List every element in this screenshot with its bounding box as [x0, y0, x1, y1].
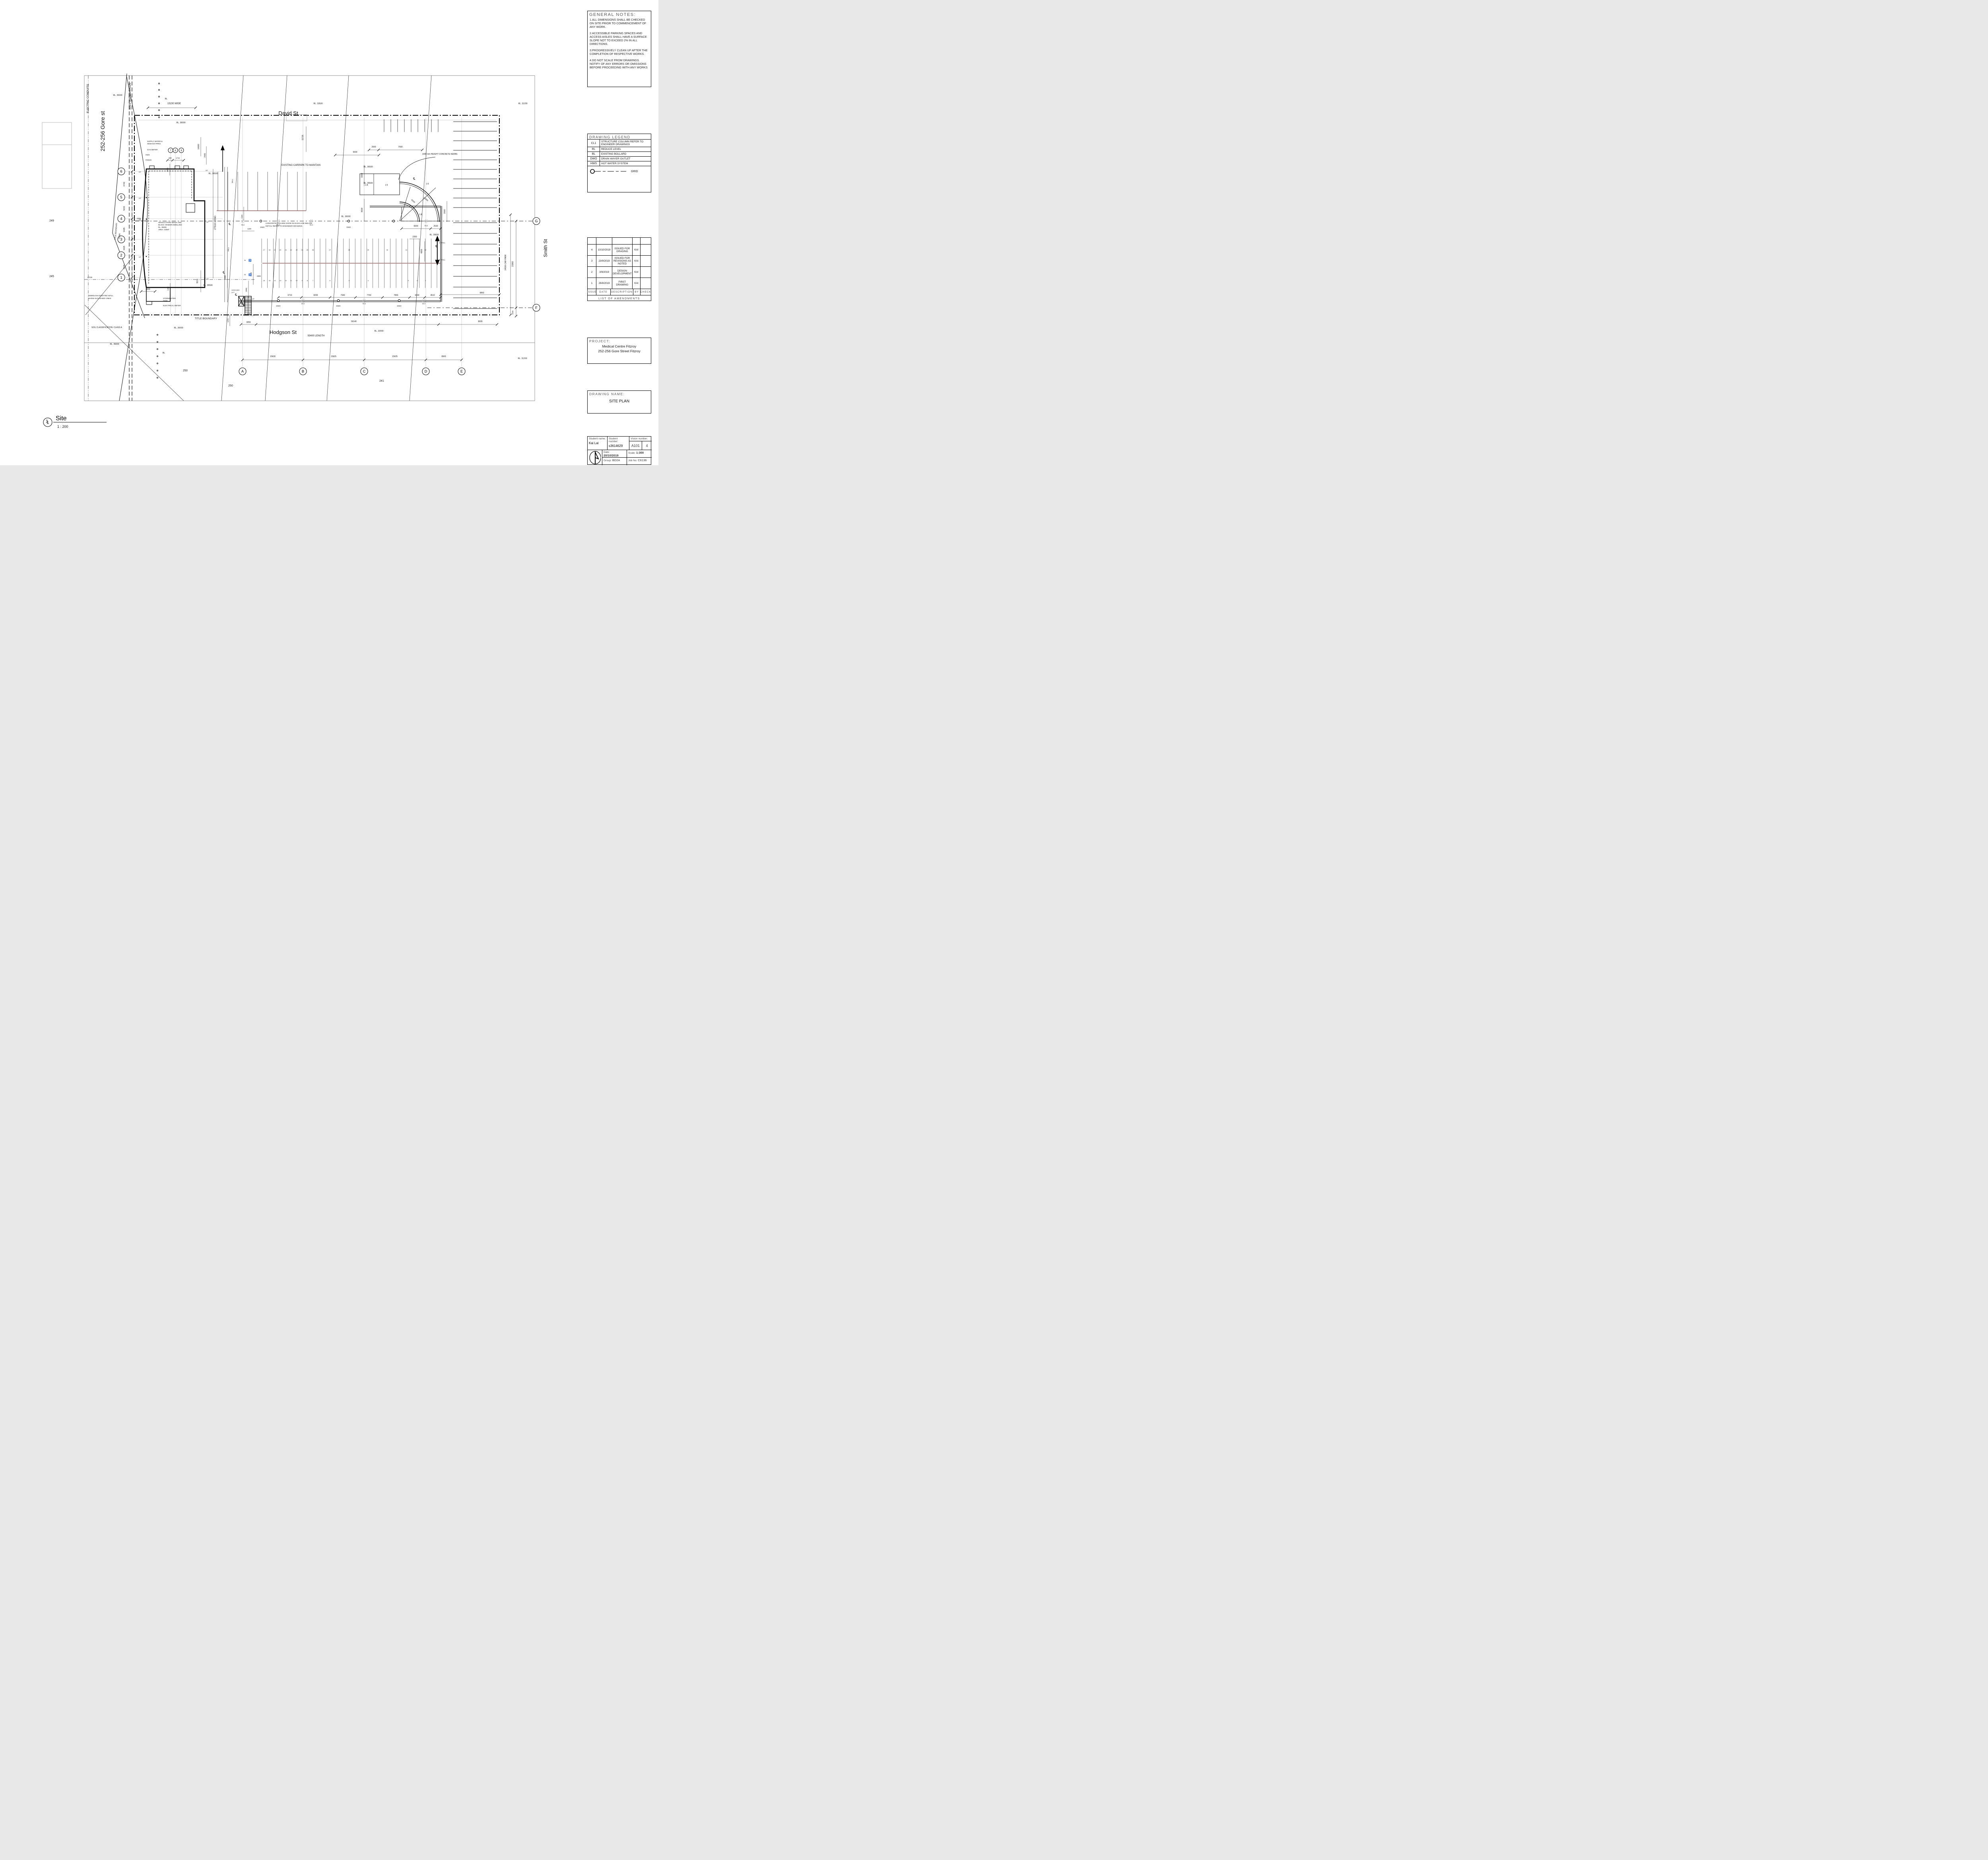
plan-label: DP [206, 221, 209, 223]
plan-label: CONCRETE COLUMN SHOW IN DASH LINE BELOW [266, 222, 312, 225]
bollard [159, 110, 160, 111]
carpark-walls [239, 206, 442, 302]
wheelchair-icon: ♿ [248, 273, 252, 276]
parking-number: 16 [263, 280, 265, 282]
bollard [159, 103, 160, 104]
plan-label: 7760 [367, 294, 371, 297]
plan-label: 58140 [351, 320, 357, 323]
plan-label: ELECTRIC CONDUITS [87, 84, 89, 113]
plan-label: TITLE BOUNDARY [195, 317, 217, 320]
grid-bubble-label: F [535, 306, 538, 310]
general-note: 2.ACCESSIBLE PARKING SPACES AND ACCESS A… [590, 31, 649, 46]
amendment-row: 410/10/2019ISSUED FOR GRADINGKAI [588, 245, 651, 256]
stair [245, 296, 251, 315]
parking-number: 29 [367, 249, 369, 251]
plan-label: 9570 [196, 279, 199, 283]
parking-number: 27 [329, 249, 331, 251]
amendment-row [588, 238, 651, 245]
amendment-cell: ISSUED FOR GRADING [612, 245, 633, 255]
plan-label: 1° FALL [439, 259, 446, 261]
amendment-row: 323/9/2019ISSUED FOR REVISIONS AS NOTEDK… [588, 256, 651, 267]
plan-label: Smith St [543, 239, 548, 257]
bollard [157, 370, 158, 371]
amendments-table: 410/10/2019ISSUED FOR GRADINGKAI323/9/20… [588, 238, 651, 301]
legend-code: BL [588, 152, 600, 156]
legend-grid-label: GRID [631, 170, 638, 173]
plan-label: CL1 [301, 303, 305, 305]
plan-label: SINGLE STORY BRICK AND [158, 221, 182, 223]
grid-bubble-label: 2 [120, 253, 122, 257]
plan-label: EXISTING CARPARK TO MAINTAIN [282, 164, 320, 167]
plan-label: RL. 35500 [363, 182, 373, 184]
plan-label: SEWAGE PIPES [147, 143, 161, 145]
plan-label: MAIN WATER DRAIN [129, 83, 132, 110]
parking-number: 13 [280, 280, 282, 282]
plan-label: 250 [228, 384, 233, 387]
plan-label: AREA: 420M² [158, 229, 169, 231]
plan-label: 5405 [123, 227, 126, 232]
grid-bubble-label: D [425, 369, 427, 373]
legend-desc: DRAIN WAYER OUTLET [600, 157, 651, 161]
drawing-name: SITE PLAN [588, 399, 651, 404]
driveway-edges [225, 167, 227, 302]
plan-label: RL. 36500 [363, 166, 373, 168]
plan-label: 241 [379, 380, 384, 382]
legend-code: HWS [588, 161, 600, 166]
amendment-cell [641, 267, 651, 278]
plan-label: 1190 [247, 228, 251, 230]
site-plan-canvas: 654321789ABCDEGF1 David StHodgson StSmit… [0, 0, 658, 465]
plan-label: 2405 [137, 217, 141, 219]
plan-label: 2700 [167, 167, 169, 172]
amendment-row: 23/9/2019DESIGN DEVELOPMENTKAI [588, 267, 651, 278]
plan-label: CL1 [277, 224, 280, 226]
plan-label: 12000 [423, 196, 429, 202]
meter-boxes [149, 166, 195, 212]
amendment-cell: 4 [588, 245, 596, 255]
plan-label: 250 [183, 369, 188, 372]
title-block: Student name: Kai Lai Student number: s3… [587, 436, 651, 465]
bollard-dots [157, 83, 160, 379]
plan-label: Hodgson St [270, 329, 297, 335]
amendment-cell: KAI [633, 245, 641, 255]
view-number: 1 [46, 419, 48, 424]
project-name: Medical Centre Fitzroy 252-256 Gore Stre… [588, 344, 651, 353]
amendment-cell: DATE [596, 289, 611, 295]
amendment-cell [641, 256, 651, 266]
general-notes-title: GENERAL NOTES: [588, 11, 651, 17]
smith-st-parking [453, 122, 497, 309]
student-number-cell: Student number: s3614629 [608, 437, 629, 450]
title-boundary [134, 115, 499, 315]
parking-number: 7 [313, 280, 314, 282]
drawing-name-label: DRAWING NAME: [588, 391, 651, 397]
plan-label: RL. 35500 [203, 284, 212, 287]
plan-label: 880 [169, 157, 172, 159]
accessible-bay-number: 33 [244, 274, 246, 276]
vision-number-label: Vision number: [631, 437, 648, 440]
legend-row: BLEXISTING BOLLARD [588, 151, 651, 156]
plan-label: LPOD [87, 276, 93, 278]
plan-label: 11725 [302, 135, 304, 140]
parking-number: 17 [263, 249, 265, 251]
parking-number: 31 [406, 249, 408, 251]
project-panel: PROJECT: Medical Centre Fitzroy 252-256 … [587, 338, 651, 364]
grid-bubble-label: 6 [120, 169, 122, 173]
plan-label: DWO [397, 305, 402, 307]
plan-label: 3055 [246, 321, 250, 324]
amendment-cell [596, 238, 612, 244]
plan-label: DWO [336, 305, 341, 307]
legend-grid-row: GRID [588, 166, 651, 177]
plan-label: CL1 [425, 225, 428, 227]
scale-cell: Scale: 1:300 [627, 450, 652, 458]
amendment-cell: KAI [633, 278, 641, 289]
plan-label: 1715 [176, 157, 180, 159]
legend-row: RLREDUCE LEVEL [588, 147, 651, 151]
plan-label: 7340 [340, 294, 345, 297]
plan-label: DP [139, 171, 141, 173]
bollard [159, 117, 160, 118]
general-note: 3.PROGRESSIVELY CLEAN UP AFTER THE COMPL… [590, 49, 649, 56]
grid-bubble-label: B [302, 369, 304, 373]
plan-label: 5375 [123, 264, 126, 269]
north-arrow-cell [588, 450, 602, 465]
plan-label: 8000 [361, 208, 363, 212]
amendment-cell: 10/10/2019 [596, 245, 612, 255]
parking-number: 26 [312, 249, 314, 251]
amendment-cell [641, 245, 651, 255]
parking-number: 28 [348, 249, 350, 251]
grid-bubble-label: 1 [120, 276, 122, 280]
bollard [157, 349, 158, 350]
amendment-cell [612, 238, 633, 244]
bollard [157, 356, 158, 357]
existing-carpark-bays [218, 172, 306, 211]
legend-code: CL1 [588, 140, 600, 147]
general-note: 1.ALL DIMENSIONS SHALL BE CHECKED ON SIT… [590, 18, 649, 29]
dwelling-outline [143, 169, 205, 287]
plan-label: DP [206, 278, 209, 280]
parking-number: 3 [408, 280, 409, 282]
legend-desc: STRUCTURE COLUMN REFER TO ENGINEER DRAWI… [600, 140, 651, 147]
plan-label: RL. 31200 [518, 357, 527, 360]
view-name: Site [56, 415, 67, 422]
plan-label: 6000 [414, 225, 418, 227]
legend-row: HWSHOT WATER SYSTEM [588, 161, 651, 166]
general-notes-panel: GENERAL NOTES: 1.ALL DIMENSIONS SHALL BE… [587, 11, 651, 87]
plan-label: 9930 [353, 151, 357, 153]
date-label: Date: [604, 451, 610, 454]
dimension-ticks [131, 107, 517, 361]
amendment-cell: 2 [588, 267, 596, 278]
legend-desc: HOT WATER SYSTEM [600, 161, 651, 166]
sheet-number-cell: A101 [629, 441, 642, 450]
legend-code: RL [588, 147, 600, 151]
amendment-cell [641, 278, 651, 289]
plan-label: 21960 [512, 261, 514, 267]
plan-label: DETAIL REFER TO ENGINEER DRAWING. [266, 225, 303, 227]
plan-label: RL. 35000 [110, 343, 119, 346]
plan-label: 51080 [118, 233, 121, 239]
scale-value: 1:300 [636, 451, 644, 454]
plan-label: CL1 [363, 303, 366, 305]
plan-label: 2235 [512, 310, 514, 315]
plan-annotations: David StHodgson StSmith St252-256 Gore s… [49, 83, 548, 387]
plan-label: 8490 [224, 275, 227, 280]
plan-label: 15625 [331, 355, 336, 358]
parking-number: 10 [296, 280, 298, 282]
plan-label: ℄ [413, 177, 415, 181]
amendment-cell [588, 238, 596, 244]
plan-label: 5015 [123, 206, 126, 210]
plan-label: 2350 [412, 236, 417, 238]
plan-label: SUPPLY WATER & [147, 140, 163, 142]
plan-label: ℄ [235, 293, 237, 297]
date-cell: Date: 20/10/2019 [602, 450, 627, 458]
parking-number: 21 [285, 249, 287, 251]
grid-bubble-label: A [241, 369, 244, 373]
plan-label: 8900 [441, 355, 446, 358]
sheet-number: A101 [631, 444, 640, 448]
vision-number-label-cell: Vision number: [629, 437, 652, 441]
plan-label: 15230 WIDE [167, 103, 181, 105]
grid-symbol-icon [590, 169, 629, 174]
plan-label: 245 [49, 275, 54, 278]
project-label: PROJECT: [588, 338, 651, 344]
plan-label: 2000 [444, 209, 446, 214]
plan-label: 2530 [433, 225, 438, 227]
electrical-meter [146, 301, 152, 305]
plan-label: FALL [227, 247, 229, 251]
plan-label: ℄ [222, 271, 225, 274]
plan-label: 252-256 Gore st [99, 111, 106, 151]
plan-label: 7000 [398, 146, 402, 148]
bollard [159, 96, 160, 97]
plan-label: 1270 [227, 318, 229, 322]
parking-number: 4 [368, 280, 369, 282]
student-name-cell: Student name: Kai Lai [588, 437, 608, 450]
parking-number: 15 [269, 280, 271, 282]
plan-label: DWO [347, 226, 351, 228]
project-line1: Medical Centre Fitzroy [588, 344, 651, 349]
bollard [159, 89, 160, 91]
plan-label: 2890 [245, 287, 247, 292]
amendment-row: ISSUEDATEDESCRIPTIONBYCHECK [588, 289, 651, 295]
plan-label: CL1 [310, 224, 313, 226]
general-notes-list: 1.ALL DIMENSIONS SHALL BE CHECKED ON SIT… [588, 17, 651, 73]
plan-label: 27510 LONG [214, 216, 217, 230]
plan-label: RL. 33500 [313, 103, 322, 105]
plan-label: HWS [146, 154, 150, 156]
job-value: C6136 [638, 458, 646, 462]
plan-label: 249 [49, 219, 54, 222]
plan-label: DP [139, 197, 141, 199]
plan-label: SOIL CLASSIFICATION :CLASS A [91, 326, 122, 329]
plan-label: David St [278, 110, 298, 116]
job-label: Job No. [628, 459, 637, 462]
drain-outlet-marker [392, 220, 394, 222]
parking-number: 11 [290, 280, 292, 282]
plan-label: ℄ [228, 222, 231, 226]
plan-label: 1900X1800 [231, 289, 240, 291]
plan-label: TANK [163, 300, 168, 302]
plan-label: CL1 [422, 303, 426, 305]
student-name-label: Student name: [589, 437, 606, 440]
plan-label: 1400 [167, 286, 169, 291]
bollard [157, 342, 158, 343]
plan-label: RL. 39600 [429, 234, 439, 236]
parking-number: 9 [302, 280, 303, 282]
plan-label: 1:8 [419, 214, 422, 216]
plan-label: DP [139, 256, 141, 258]
plan-label: 2000 [371, 146, 376, 148]
main-water-drain-line [129, 76, 132, 401]
plan-label: 1:5 [385, 184, 388, 186]
plan-label: 24590 CAR PARK [505, 254, 507, 270]
project-line2: 252-256 Gore Street Fitzroy [588, 349, 651, 354]
group-value: BD2A [612, 458, 620, 462]
plan-label: 15625 [392, 355, 398, 358]
plan-label: 6000 [361, 173, 363, 177]
amendment-cell: 1 [588, 278, 596, 289]
amendment-cell: CHECK [641, 289, 651, 295]
bollard [157, 334, 158, 336]
grid-bubble-label: E [460, 369, 463, 373]
plan-label: RL. 33000 [374, 330, 383, 332]
plan-label: LIFT [231, 291, 235, 293]
parking-number: 23 [296, 249, 298, 251]
plan-label: 15630 [270, 355, 276, 358]
plan-label: FALL [231, 179, 233, 183]
scale-label: Scale: [628, 452, 635, 454]
plan-label: FENCE [146, 159, 151, 161]
plan-label: GAS METER [147, 149, 158, 151]
parking-number: 6 [330, 280, 331, 282]
parking-number: 30 [386, 249, 388, 251]
plan-label: RL. 36500 [208, 173, 217, 175]
plan-label: UP [252, 298, 254, 300]
parking-number: 22 [290, 249, 292, 251]
amendment-cell [633, 238, 641, 244]
plan-label: 1° FALL [439, 242, 446, 244]
plan-label: 2890 [257, 275, 261, 277]
legend-row: CL1STRUCTURE COLUMN REFER TO ENGINEER DR… [588, 139, 651, 147]
plan-label: CL1 [241, 224, 245, 226]
plan-label: 1700 [247, 313, 251, 315]
drain-outlet-marker [398, 299, 400, 301]
amendment-cell: 3/9/2019 [596, 267, 612, 278]
parking-number: 32 [425, 249, 427, 251]
amendment-row: 126/8/2019FIRST DRAWINGKAI [588, 278, 651, 289]
grid-bubbles: 654321789ABCDEGF1 [47, 148, 540, 425]
plan-label: ELECTRICAL METER [163, 305, 181, 307]
plan-label: DWO [260, 226, 265, 228]
plan-label: BLOCK VENEER DWELLING [158, 224, 182, 226]
amendment-cell: KAI [633, 267, 641, 278]
amendments-title: LIST OF AMENDMENTS [588, 295, 651, 302]
plan-label: RL. 35000 [174, 327, 183, 329]
wheelchair-icon: ♿ [248, 259, 252, 262]
grid-bubble-label: C [363, 369, 366, 373]
plan-label: 8695 [478, 320, 482, 323]
plan-label: 1160 [241, 215, 243, 219]
plan-label: 6740 [123, 182, 126, 186]
parking-number: 19 [274, 249, 276, 251]
parking-number: 24 [301, 249, 303, 251]
parking-number: 20 [280, 249, 282, 251]
accessible-bay-number: 34 [244, 259, 246, 261]
legend-rows: CL1STRUCTURE COLUMN REFER TO ENGINEER DR… [588, 139, 651, 166]
amendment-cell: ISSUED FOR REVISIONS AS NOTED [612, 256, 633, 266]
road-edges [84, 76, 535, 401]
dimension-lines [132, 108, 516, 360]
plan-label: DWO [276, 305, 281, 307]
amendment-cell: 23/9/2019 [596, 256, 612, 266]
amendment-cell: FIRST DRAWING [612, 278, 633, 289]
plan-label: RL. 36200 [158, 226, 167, 228]
amendment-cell: DESCRIPTION [611, 289, 633, 295]
plan-label: 4800 [421, 249, 423, 253]
grid-bubble-label: 4 [120, 217, 122, 221]
amendments-panel: 410/10/2019ISSUED FOR GRADINGKAI323/9/20… [587, 237, 651, 301]
plan-label: 4510 [430, 294, 435, 297]
plan-label: STORMWATER [163, 297, 176, 299]
grid-bubble-label: 5 [120, 195, 122, 199]
plan-label: BL [163, 352, 165, 354]
group-label: Group: [604, 459, 612, 462]
date-value: 20/10/2019 [604, 454, 619, 457]
student-number-value: s3614629 [609, 444, 628, 448]
drain-outlet-marker [337, 299, 339, 301]
legend-desc: REDUCE LEVEL [600, 147, 651, 151]
amendment-cell [641, 238, 651, 244]
plan-label: DEMOLISH EXISTING WALL [88, 295, 113, 297]
kerb-arcs [398, 157, 439, 222]
view-scale: 1 : 200 [57, 425, 68, 429]
drain-outlet-marker [260, 220, 262, 222]
parking-number: 1 [425, 280, 426, 282]
column-markers [241, 219, 428, 302]
north-parking-ticks [384, 119, 438, 132]
plan-label: BL [165, 98, 167, 100]
legend-code: DWO [588, 157, 600, 161]
revision-cell: 4 [642, 441, 652, 450]
plan-label: TITLE BOUNDARY [114, 222, 118, 240]
legend-row: DWODRAIN WAYER OUTLET [588, 156, 651, 161]
plan-label: DP [206, 169, 208, 171]
survey-diagonals [85, 76, 431, 401]
drawing-name-panel: DRAWING NAME: SITE PLAN [587, 390, 651, 414]
drain-outlet-marker [277, 299, 279, 301]
general-note: 4.DO NOT SCALE FROM DRAWINGS. NOTIFY OF … [590, 58, 649, 69]
fall-arrow [221, 145, 225, 172]
parking-number: 18 [269, 249, 271, 251]
grid-bubble-label: G [535, 219, 538, 223]
plan-label: 9860 [480, 292, 484, 294]
parking-number: 12 [285, 280, 287, 282]
title-boundary-west [113, 74, 145, 318]
amendment-cell: 26/8/2019 [596, 278, 612, 289]
plan-label: 1:5 [426, 183, 429, 185]
plan-label: 7865 [394, 294, 398, 297]
plan-label: 4425 [123, 246, 126, 250]
plan-label: ℄ [435, 245, 438, 248]
plan-label: 14000 [198, 144, 200, 149]
bollard [157, 363, 158, 364]
plan-label: 8290 [313, 294, 318, 297]
plan-label: 1000 mm HEIGHT CONCRETE KERBS [422, 153, 458, 155]
